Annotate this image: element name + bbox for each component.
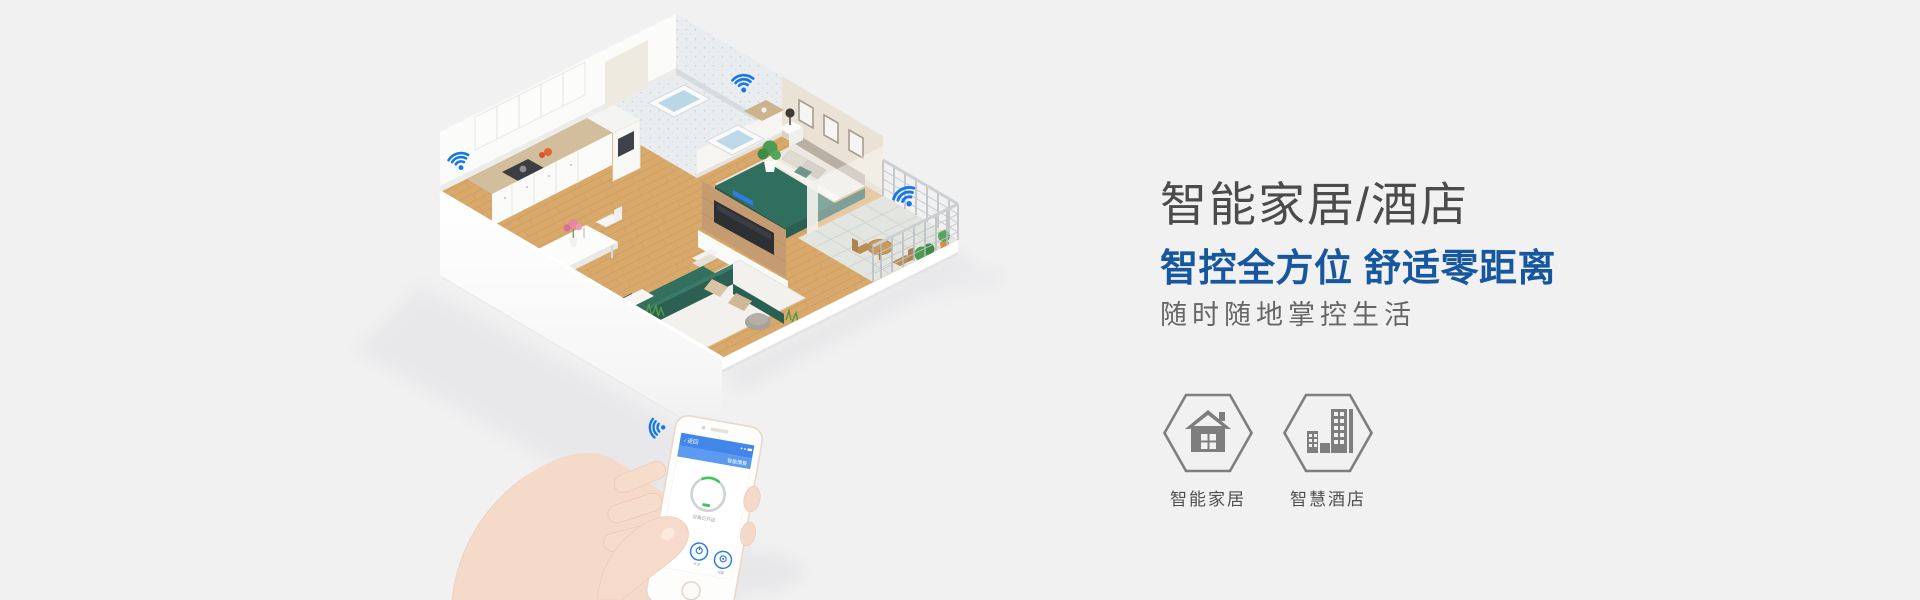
hero-banner: ‹ 返回 智能情景 设备已开启 情景 开关 bbox=[0, 0, 1920, 600]
hero-title: 智能家居/酒店 bbox=[1160, 166, 1469, 235]
category-list: 智能家居 智慧酒店 bbox=[1163, 393, 1373, 510]
category-label: 智慧酒店 bbox=[1290, 485, 1366, 510]
category-card-smart-hotel[interactable]: 智慧酒店 bbox=[1283, 393, 1373, 510]
home-icon bbox=[1163, 393, 1253, 473]
hero-subtitle: 智控全方位 舒适零距离 bbox=[1160, 237, 1556, 292]
apartment-illustration: ‹ 返回 智能情景 设备已开启 情景 开关 bbox=[0, 0, 1920, 600]
hotel-building-icon bbox=[1283, 393, 1373, 473]
category-card-smart-home[interactable]: 智能家居 bbox=[1163, 393, 1253, 510]
hero-description: 随时随地掌控生活 bbox=[1160, 293, 1416, 332]
category-label: 智能家居 bbox=[1170, 485, 1246, 510]
